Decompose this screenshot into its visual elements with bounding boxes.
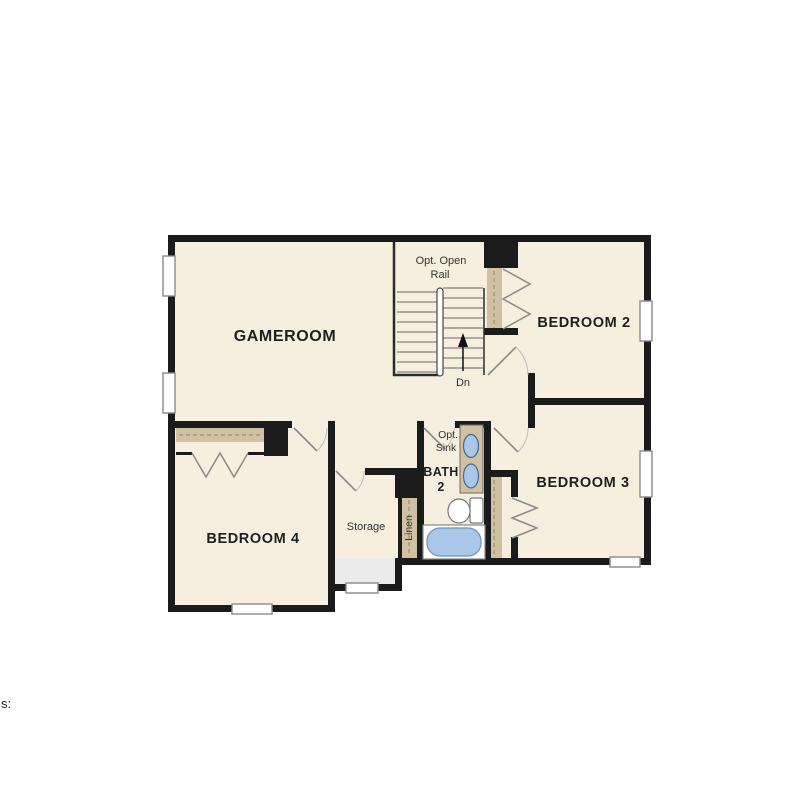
wall-gameroom-bottom	[168, 421, 292, 428]
window-storage-bottom	[346, 583, 378, 593]
wall-bed2-closet-bottom	[484, 328, 518, 335]
wall-hall-block	[395, 468, 420, 498]
stair-rail	[437, 288, 443, 376]
gameroom-label: GAMEROOM	[234, 328, 337, 345]
bathtub-icon	[423, 525, 485, 559]
bath2-label-line2: 2	[437, 480, 444, 494]
linen-label: Linen	[403, 515, 415, 541]
stairs-direction-label: Dn	[456, 377, 470, 389]
stairs-note-line1: Opt. Open	[416, 255, 467, 267]
opt-sink-note-line1: Opt.	[438, 429, 458, 441]
bedroom3-label: BEDROOM 3	[536, 475, 629, 491]
wall-bed2-closet-top-block	[484, 239, 518, 268]
window-bedroom4-bottom	[232, 604, 272, 614]
wall-bed4-closet-stub-left	[176, 452, 192, 455]
opt-sink-note-line2: Sink	[436, 442, 457, 454]
wall-bed2-bed3-divider	[528, 398, 651, 405]
window-bedroom2-right	[640, 301, 652, 341]
bedroom2-label: BEDROOM 2	[537, 315, 630, 331]
floor-plan-canvas: GAMEROOM BEDROOM 2 BEDROOM 3 BEDROOM 4 B…	[0, 0, 810, 810]
sink-icon	[464, 464, 479, 488]
wall-bed3-closet-stub2	[511, 537, 518, 558]
stairs-note-line2: Rail	[431, 269, 450, 281]
wall-hall-stub	[528, 373, 535, 428]
wall-bed4-closet-block	[264, 428, 288, 456]
wall-bedroom4-right	[328, 421, 335, 612]
window-bedroom3-right	[640, 451, 652, 497]
window-gameroom-left-1	[163, 256, 175, 296]
window-bedroom3-bottom	[610, 557, 640, 567]
wall-bed4-closet-stub-right	[248, 452, 264, 455]
bedroom4-label: BEDROOM 4	[206, 531, 299, 547]
window-gameroom-left-2	[163, 373, 175, 413]
wall-linen-left	[398, 497, 402, 558]
toilet-icon	[448, 498, 483, 523]
understair-area	[335, 558, 398, 586]
wall-top	[168, 235, 651, 242]
sink-icon	[464, 435, 479, 458]
storage-label: Storage	[347, 521, 386, 533]
bath2-label-line1: BATH	[423, 465, 458, 479]
wall-bed3-closet-stub1	[511, 477, 518, 497]
wall-storage-ext-right	[395, 558, 402, 591]
floor-plan-svg: GAMEROOM BEDROOM 2 BEDROOM 3 BEDROOM 4 B…	[0, 0, 810, 810]
partial-edge-text: s:	[1, 696, 11, 711]
